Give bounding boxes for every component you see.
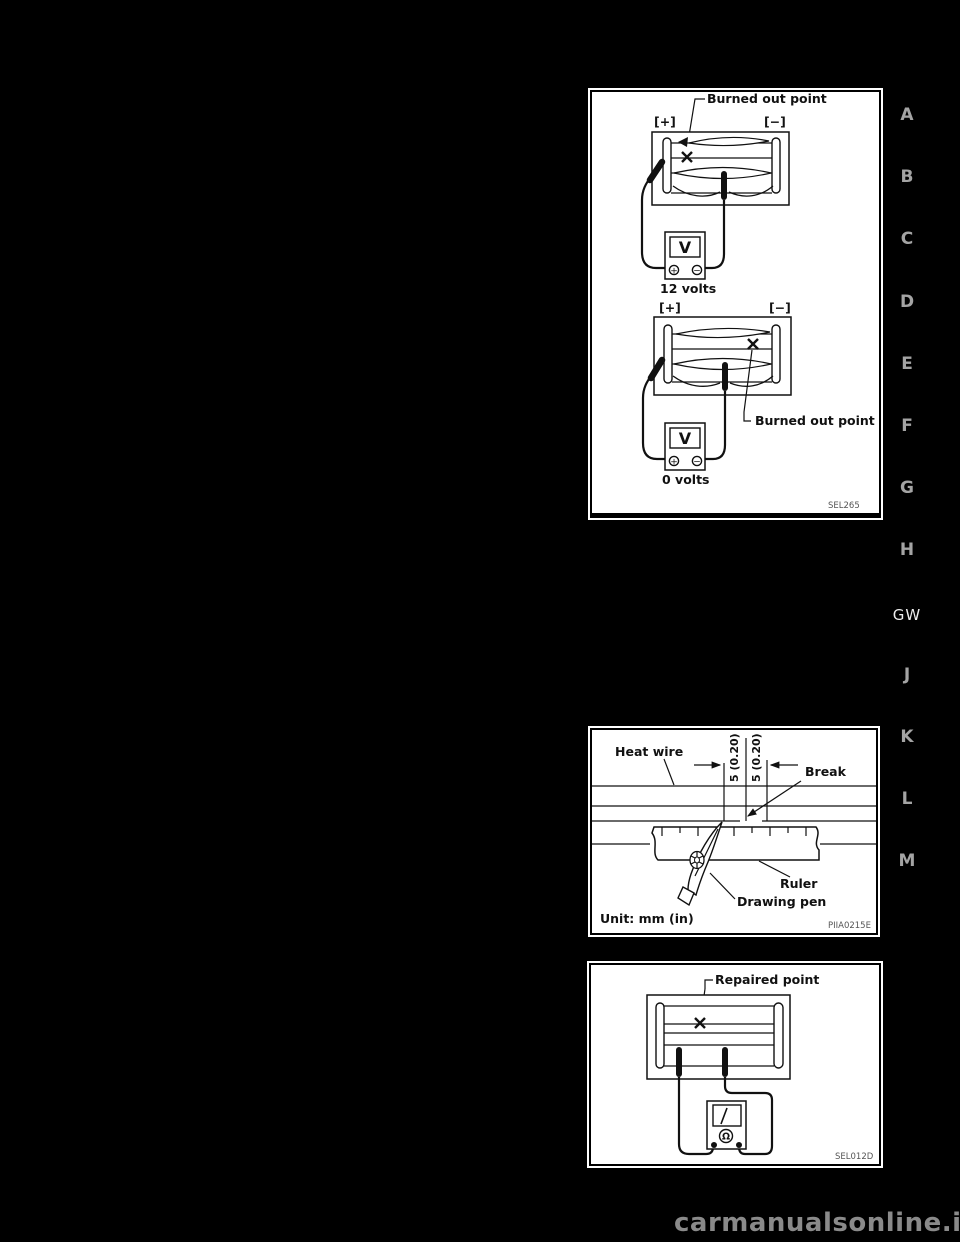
bus-bar-right [772, 325, 780, 383]
section-tab-f: F [892, 416, 922, 436]
voltage-check-drawing: Burned out point [+] [−] [592, 92, 879, 513]
voltmeter-bottom: V + − [665, 423, 705, 470]
burned-out-point-label-top: Burned out point [707, 92, 827, 106]
burned-out-point-label-bottom: Burned out point [755, 413, 875, 428]
section-tab-c: C [892, 229, 922, 249]
section-tab-m: M [892, 851, 922, 871]
bus-bar-left [656, 1003, 664, 1068]
ohmmeter: Ω [707, 1101, 746, 1149]
meter-terminal-right [736, 1142, 742, 1148]
bus-bar-right [774, 1003, 783, 1068]
section-tab-d: D [892, 292, 922, 312]
section-tab-j: J [892, 665, 922, 685]
reading-12-volts: 12 volts [660, 281, 716, 296]
dimension-left-label: 5 (0.20) [728, 733, 741, 782]
plus-terminal-icon: + [670, 458, 678, 468]
site-watermark: carmanualsonline.info [674, 1208, 960, 1238]
voltmeter-letter: V [679, 429, 692, 448]
bus-bar-right [772, 138, 780, 193]
break-label: Break [805, 764, 847, 779]
diagram-burnout-left: Burned out point [+] [−] [642, 92, 827, 296]
figure-repair-measure: Heat wire 5 (0.20) 5 (0.20) Break [590, 728, 878, 935]
unit-label: Unit: mm (in) [600, 911, 694, 926]
test-probe-center [721, 171, 727, 200]
repaired-point-label: Repaired point [715, 972, 819, 987]
dimension-right-label: 5 (0.20) [750, 733, 763, 782]
ruler [652, 827, 819, 860]
positive-terminal-label: [+] [654, 114, 676, 129]
figure-voltage-check: Burned out point [+] [−] [590, 90, 881, 518]
minus-terminal-icon: − [693, 267, 701, 277]
heat-wire-label: Heat wire [615, 744, 683, 759]
repair-measure-drawing: Heat wire 5 (0.20) 5 (0.20) Break [592, 730, 876, 933]
manual-page: Burned out point [+] [−] [0, 0, 960, 1242]
meter-terminal-left [711, 1142, 717, 1148]
test-probe-right [722, 1047, 728, 1077]
repair-check-drawing: Repaired point [591, 965, 879, 1164]
section-tab-h: H [892, 540, 922, 560]
voltmeter-top: V + − [665, 232, 705, 279]
voltmeter-letter: V [679, 238, 692, 257]
negative-terminal-label: [−] [764, 114, 786, 129]
reading-0-volts: 0 volts [662, 472, 710, 487]
negative-terminal-label-2: [−] [769, 300, 791, 315]
test-probe-center [722, 362, 728, 391]
section-tab-e: E [892, 354, 922, 374]
ruler-label: Ruler [780, 876, 818, 891]
test-probe-left [676, 1047, 682, 1077]
minus-terminal-icon: − [693, 458, 701, 468]
section-tab-gw: GW [892, 605, 922, 625]
figure-code: PIIA0215E [828, 921, 871, 931]
positive-terminal-label-2: [+] [659, 300, 681, 315]
section-tab-b: B [892, 167, 922, 187]
ohm-symbol: Ω [722, 1132, 730, 1143]
section-tab-a: A [892, 105, 922, 125]
bus-bar-left [664, 325, 672, 383]
section-tab-l: L [892, 789, 922, 809]
drawing-pen-label: Drawing pen [737, 894, 826, 909]
figure-code: SEL265 [828, 501, 860, 511]
figure-repair-check: Repaired point [589, 963, 881, 1166]
section-tab-g: G [892, 478, 922, 498]
diagram-burnout-right: [+] [−] Burned out [643, 300, 875, 487]
section-tab-k: K [892, 727, 922, 747]
figure-code: SEL012D [835, 1152, 874, 1162]
bus-bar-left [663, 138, 671, 193]
dimension-lines: 5 (0.20) 5 (0.20) [694, 733, 798, 821]
plus-terminal-icon: + [670, 267, 678, 277]
